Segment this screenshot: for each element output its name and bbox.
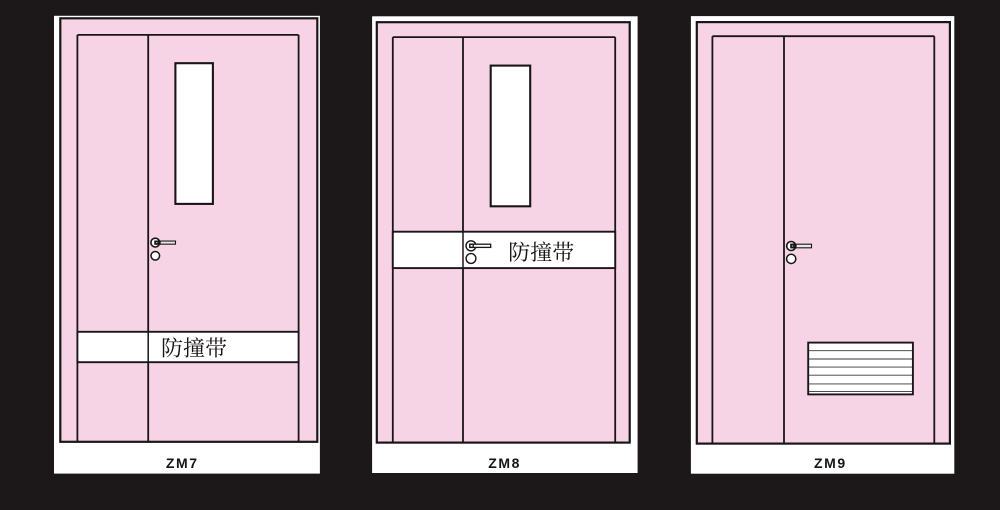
svg-text:ZM7: ZM7 xyxy=(166,455,199,471)
svg-text:ZM9: ZM9 xyxy=(814,455,847,471)
svg-text:ZM8: ZM8 xyxy=(488,455,521,471)
